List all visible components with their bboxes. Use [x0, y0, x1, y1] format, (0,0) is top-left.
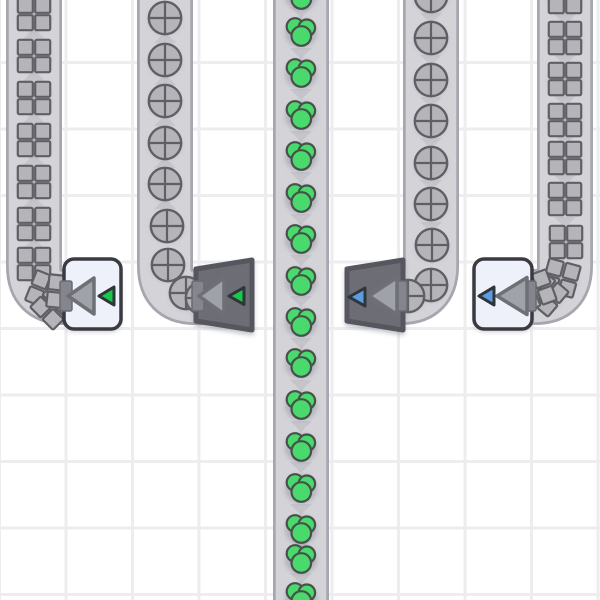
circle-item	[416, 229, 448, 261]
circle-item	[149, 85, 181, 117]
game-viewport[interactable]	[0, 0, 600, 600]
building-dark-green[interactable]	[192, 260, 252, 330]
building-white-green[interactable]	[60, 259, 121, 329]
circle-item	[149, 127, 181, 159]
circle-item	[151, 210, 183, 242]
berry-cluster-item	[287, 583, 315, 600]
circle-item	[415, 22, 447, 54]
building-white-blue[interactable]	[474, 259, 536, 329]
circle-item	[149, 44, 181, 76]
circle-item	[149, 2, 181, 34]
circle-item	[415, 105, 447, 137]
circle-item	[415, 64, 447, 96]
circle-item	[152, 249, 184, 281]
circle-item	[415, 188, 447, 220]
factory-scene	[0, 0, 600, 600]
circle-item	[415, 147, 447, 179]
building-dark-blue[interactable]	[347, 260, 407, 330]
circle-item	[149, 168, 181, 200]
